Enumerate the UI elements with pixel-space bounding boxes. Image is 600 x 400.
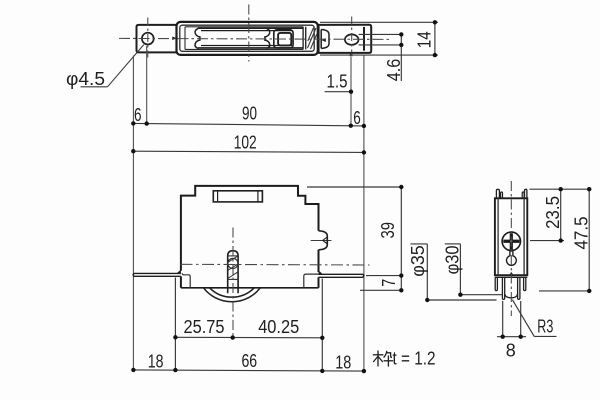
svg-text:102: 102 xyxy=(234,131,257,152)
svg-text:1.5: 1.5 xyxy=(327,71,348,92)
svg-text:23.5: 23.5 xyxy=(542,196,563,229)
svg-text:φ4.5: φ4.5 xyxy=(66,68,105,89)
svg-text:39: 39 xyxy=(377,222,398,239)
svg-text:6: 6 xyxy=(134,104,142,125)
svg-text:90: 90 xyxy=(242,103,257,124)
svg-text:R3: R3 xyxy=(537,316,553,337)
svg-text:φ30: φ30 xyxy=(442,245,463,274)
svg-text:18: 18 xyxy=(148,350,164,371)
svg-text:t = 1.2: t = 1.2 xyxy=(393,348,436,369)
svg-text:18: 18 xyxy=(335,351,351,372)
svg-text:6: 6 xyxy=(353,107,361,128)
svg-text:φ35: φ35 xyxy=(407,245,428,277)
svg-text:7: 7 xyxy=(378,279,399,287)
svg-text:8: 8 xyxy=(506,340,516,361)
svg-text:4.6: 4.6 xyxy=(383,59,404,82)
svg-text:66: 66 xyxy=(241,350,257,371)
svg-text:25.75: 25.75 xyxy=(184,316,225,337)
svg-text:47.5: 47.5 xyxy=(570,217,591,250)
svg-text:40.25: 40.25 xyxy=(258,316,299,337)
svg-text:14: 14 xyxy=(413,31,434,48)
